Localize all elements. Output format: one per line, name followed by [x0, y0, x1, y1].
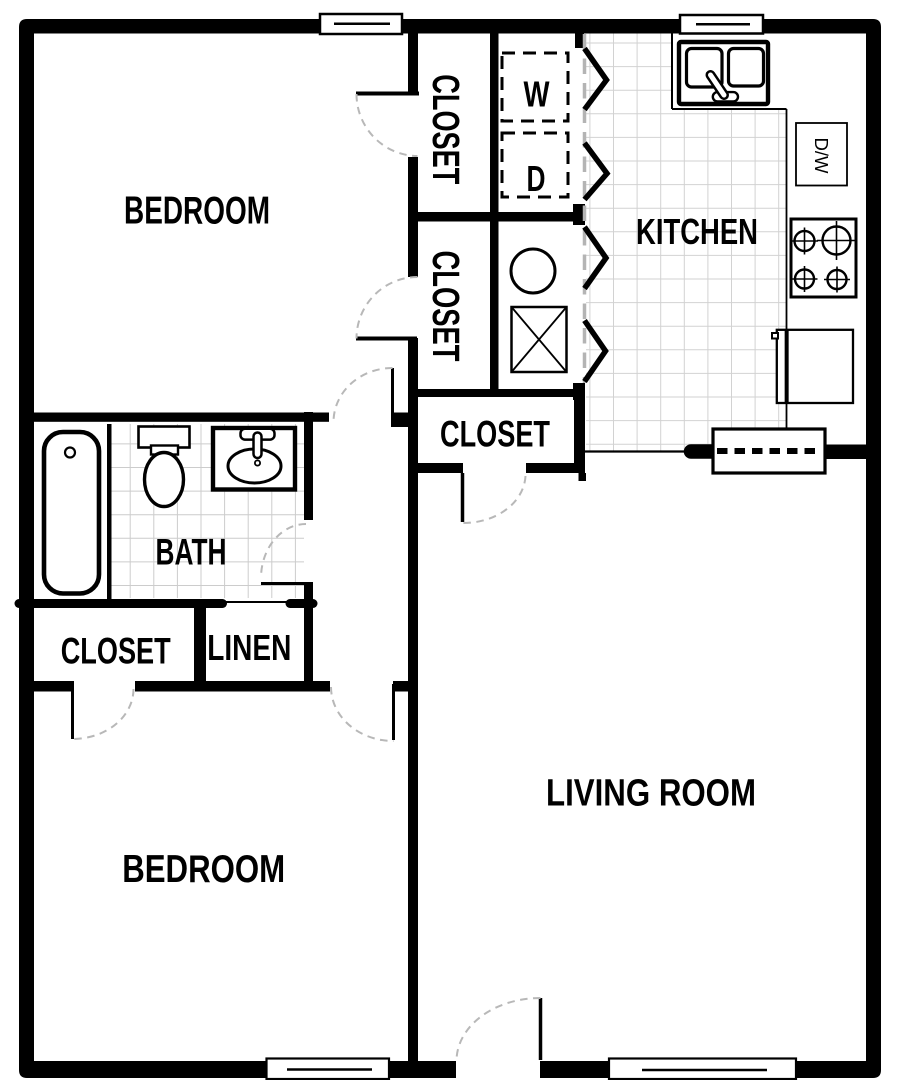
- svg-text:CLOSET: CLOSET: [424, 251, 466, 362]
- svg-text:KITCHEN: KITCHEN: [636, 211, 758, 252]
- svg-text:CLOSET: CLOSET: [440, 412, 550, 454]
- svg-text:BATH: BATH: [156, 531, 227, 573]
- svg-text:CLOSET: CLOSET: [424, 74, 466, 184]
- svg-text:LINEN: LINEN: [207, 627, 291, 668]
- svg-text:W: W: [524, 74, 550, 115]
- svg-text:LIVING ROOM: LIVING ROOM: [546, 773, 756, 815]
- svg-text:BEDROOM: BEDROOM: [122, 848, 285, 891]
- svg-text:D: D: [527, 158, 546, 199]
- svg-text:BEDROOM: BEDROOM: [124, 190, 270, 233]
- svg-text:D/W: D/W: [811, 138, 832, 175]
- svg-text:CLOSET: CLOSET: [61, 631, 171, 672]
